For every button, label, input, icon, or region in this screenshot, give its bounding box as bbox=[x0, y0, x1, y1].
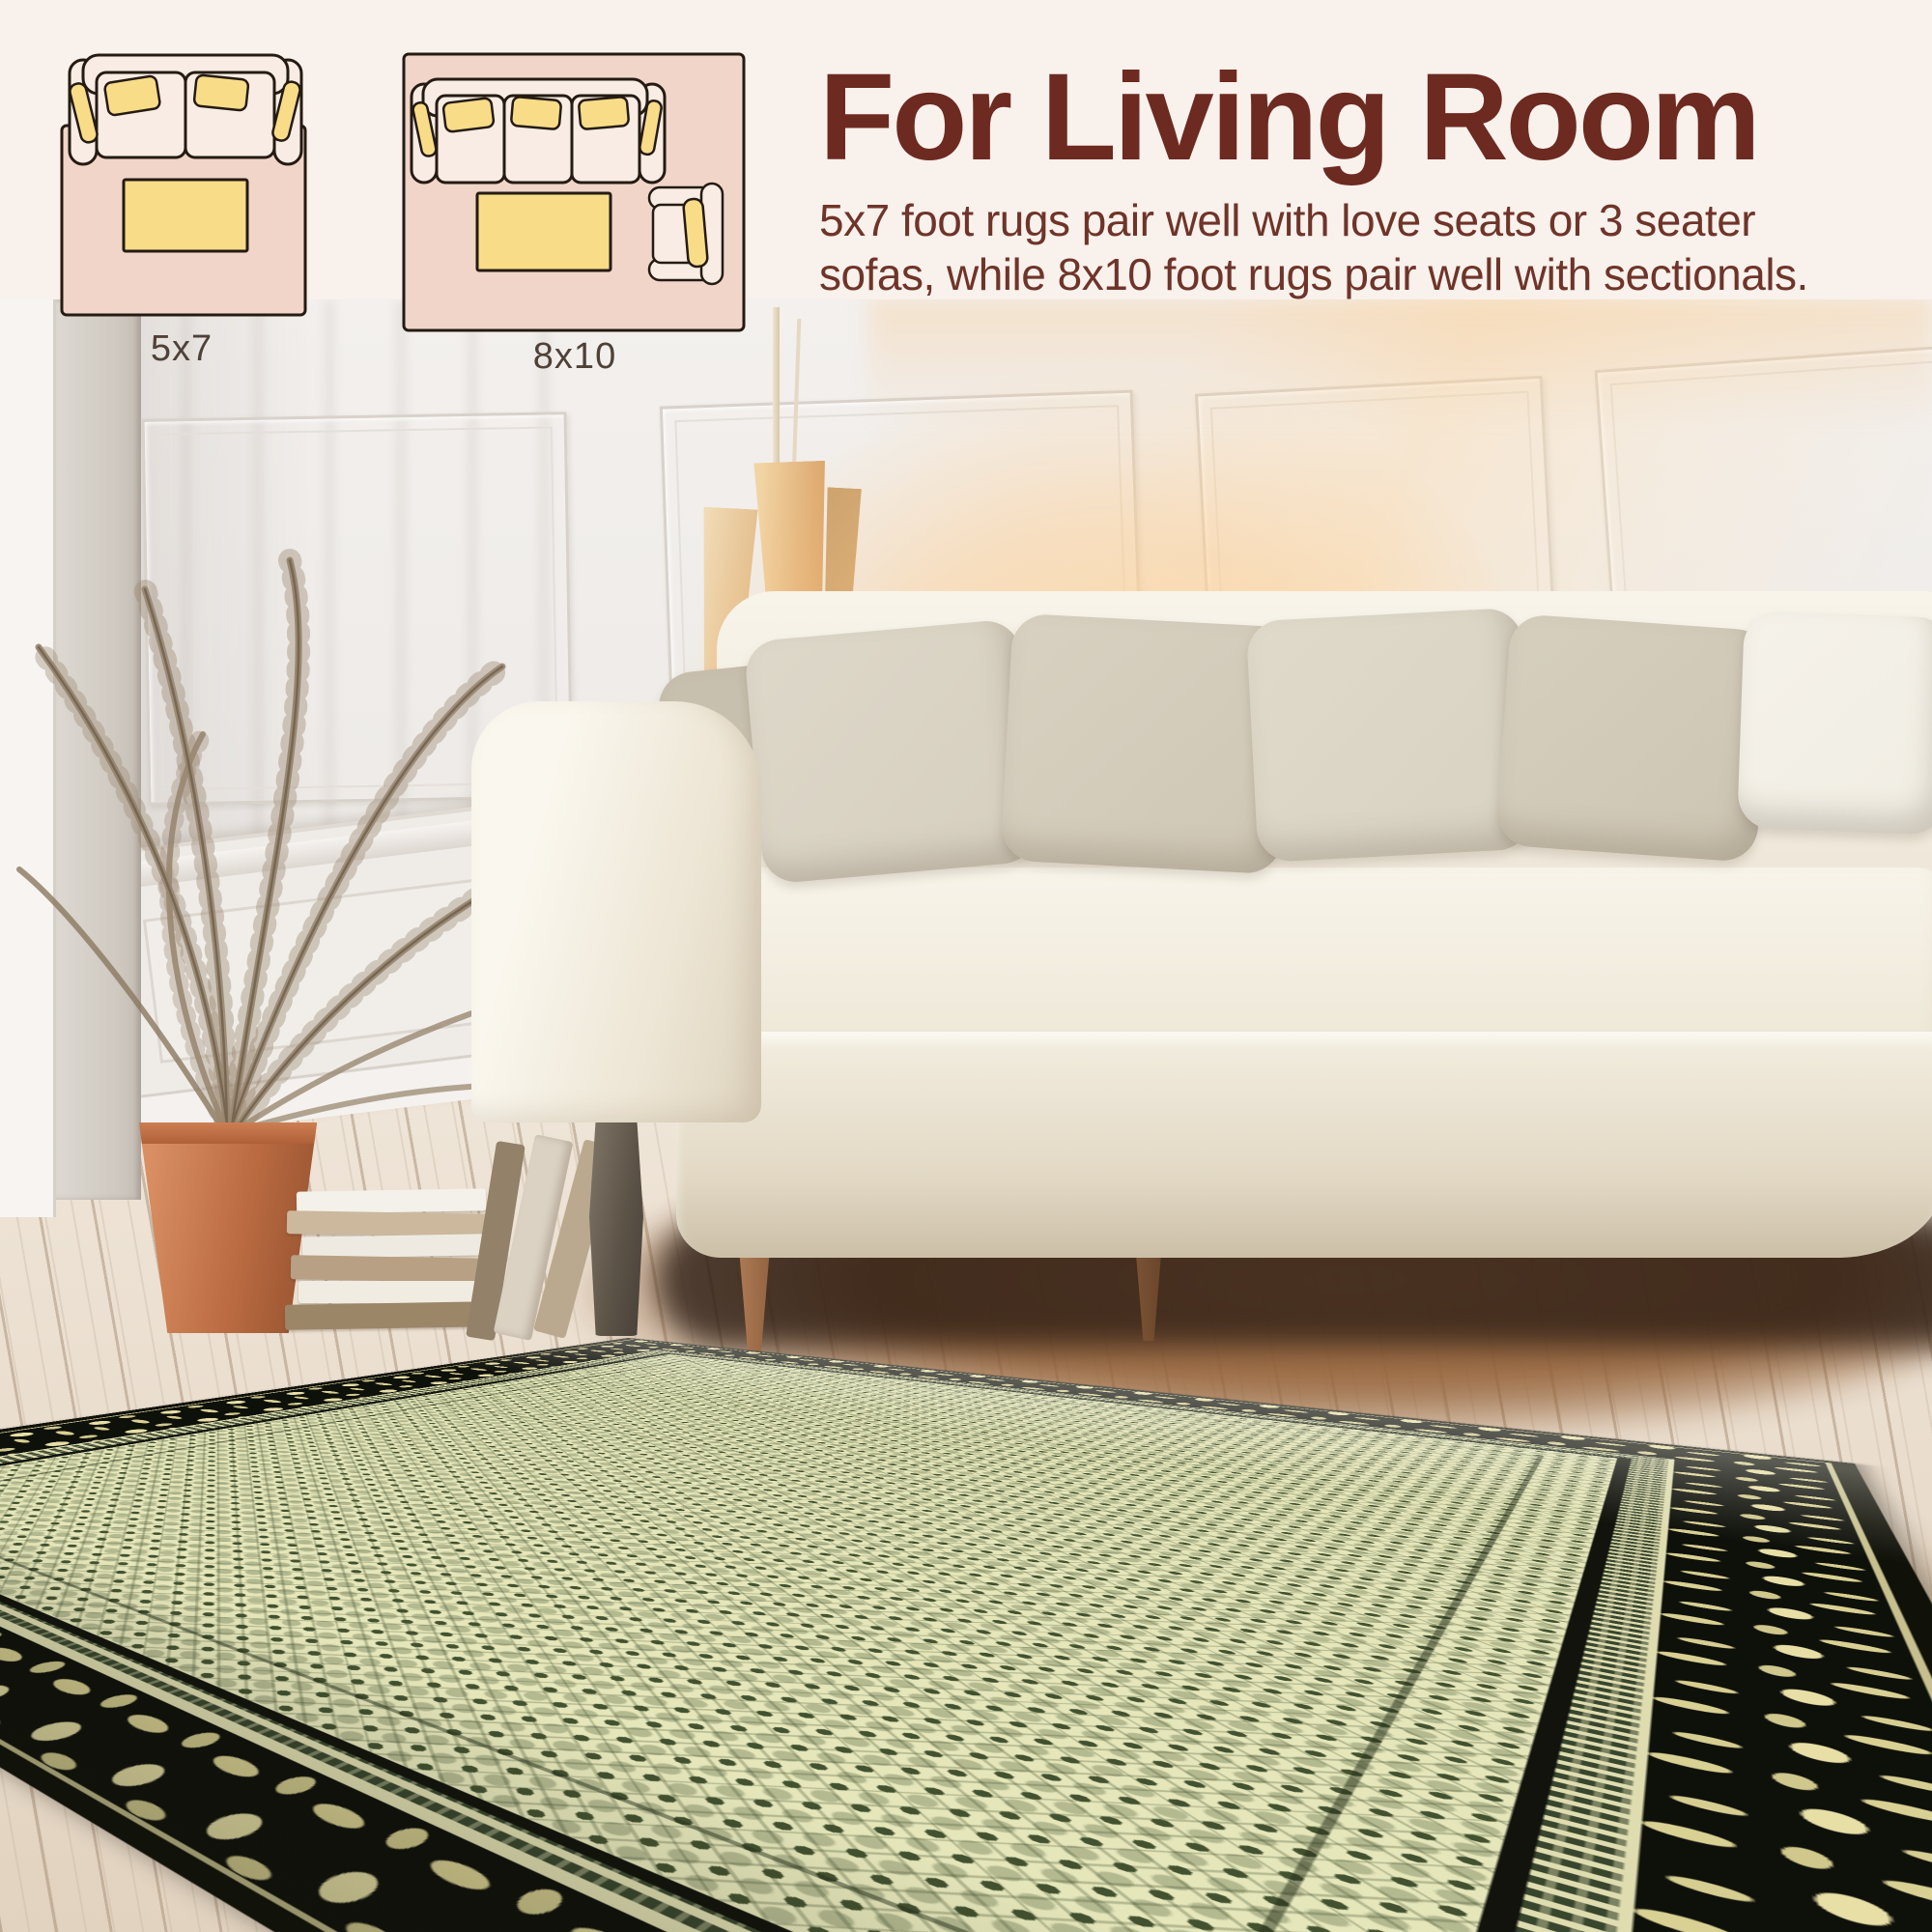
banner: 5x7 8x10 bbox=[0, 0, 1932, 299]
rug-8x10-diagram bbox=[400, 41, 750, 336]
book bbox=[291, 1255, 489, 1283]
sofa-pillow bbox=[1246, 608, 1534, 864]
rug-inner-border bbox=[0, 1353, 1632, 1932]
rug-8x10-diagram-graphic bbox=[400, 41, 750, 336]
sofa-pillow bbox=[1737, 611, 1932, 835]
rug-5x7-diagram-graphic bbox=[50, 41, 313, 323]
vase bbox=[589, 1087, 643, 1336]
book-stack bbox=[285, 1190, 497, 1335]
page-title: For Living Room bbox=[819, 56, 1920, 180]
book bbox=[298, 1281, 486, 1303]
page-description: 5x7 foot rugs pair well with love seats … bbox=[819, 193, 1920, 301]
description-line-2: sofas, while 8x10 foot rugs pair well wi… bbox=[819, 247, 1920, 301]
book bbox=[287, 1210, 490, 1237]
rug-size-label-8x10: 8x10 bbox=[400, 336, 750, 378]
rug-field bbox=[0, 1354, 1617, 1932]
description-line-1: 5x7 foot rugs pair well with love seats … bbox=[819, 193, 1920, 247]
rug-fold-line bbox=[407, 1398, 1579, 1588]
sunlight-top-tint bbox=[869, 299, 1932, 425]
rug-5x7-diagram bbox=[50, 41, 313, 323]
rug-size-label-5x7: 5x7 bbox=[50, 328, 313, 370]
banner-text: For Living Room 5x7 foot rugs pair well … bbox=[819, 56, 1920, 301]
product-infographic: 5x7 8x10 bbox=[0, 0, 1932, 1932]
sofa-armrest bbox=[471, 701, 761, 1122]
book bbox=[297, 1188, 486, 1213]
book bbox=[285, 1301, 490, 1330]
sofa-base bbox=[676, 1032, 1932, 1258]
rug-key-border bbox=[0, 1350, 1674, 1932]
sofa-pillow bbox=[744, 618, 1039, 885]
book bbox=[302, 1234, 484, 1258]
sofa-pillow bbox=[1495, 613, 1772, 863]
